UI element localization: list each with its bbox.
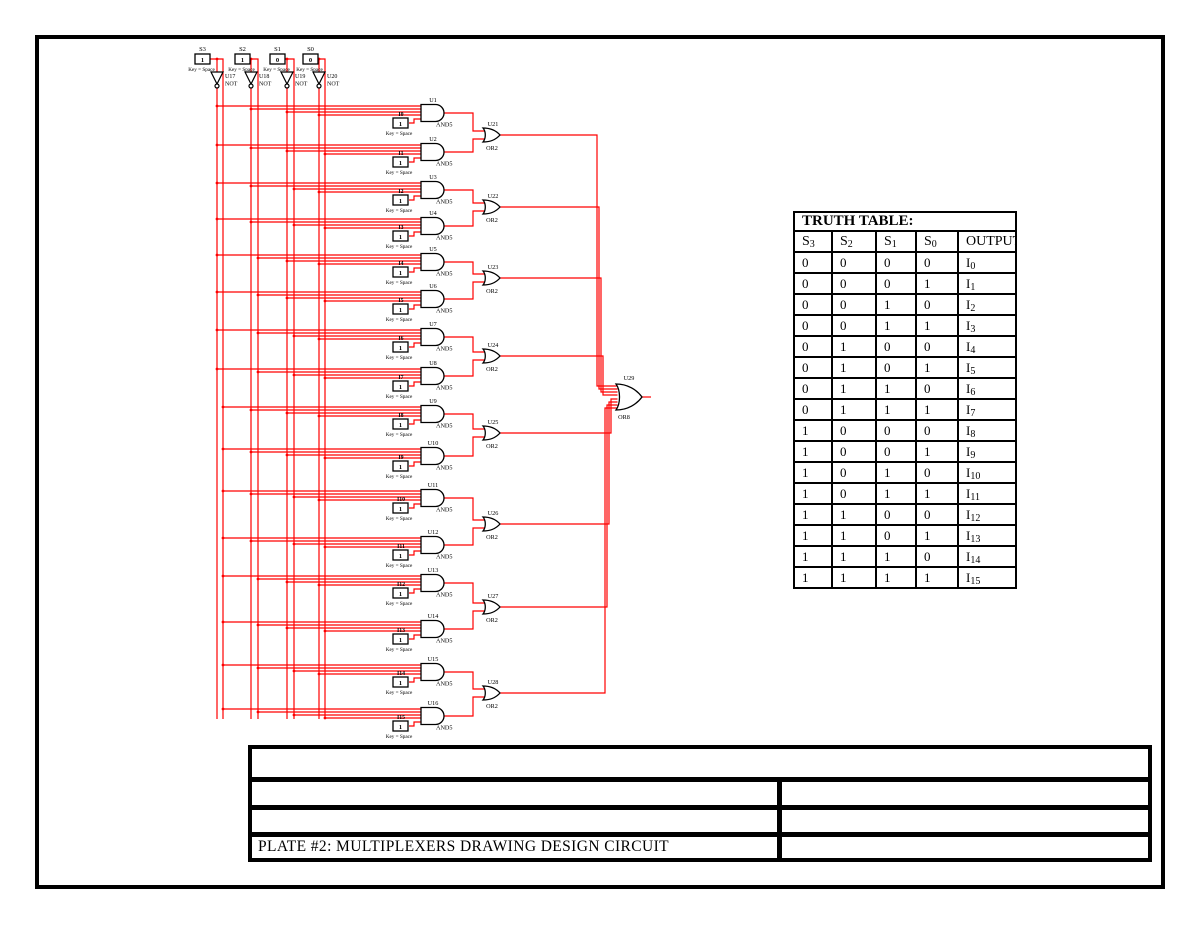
truth-table-bit-cell: 0 [876,252,916,273]
svg-text:U27: U27 [488,593,499,600]
svg-text:U2: U2 [429,136,437,143]
truth-table-row: 1010I10 [794,462,1016,483]
truth-table-bit-cell: 1 [876,315,916,336]
truth-table-bit-cell: 1 [832,567,876,588]
truth-table-bit-cell: 1 [916,483,958,504]
svg-text:S2: S2 [239,46,246,53]
truth-table-bit-cell: 1 [794,420,832,441]
svg-text:1: 1 [399,234,402,241]
truth-table-row: 1110I14 [794,546,1016,567]
truth-table-bit-cell: 1 [916,315,958,336]
svg-text:U26: U26 [488,510,499,517]
truth-table-bit-cell: 0 [794,273,832,294]
truth-table-output-cell: I2 [958,294,1016,315]
truth-table-bit-cell: 0 [832,252,876,273]
svg-text:NOT: NOT [259,82,272,88]
svg-text:I3: I3 [398,225,403,231]
svg-text:OR8: OR8 [618,414,630,421]
svg-text:Key = Space: Key = Space [386,563,413,569]
svg-text:U13: U13 [428,567,439,574]
svg-text:Key = Space: Key = Space [386,170,413,176]
truth-table-bit-cell: 0 [794,294,832,315]
truth-table-bit-cell: 1 [832,399,876,420]
truth-table-bit-cell: 1 [794,567,832,588]
truth-table-row: 0011I3 [794,315,1016,336]
truth-table-output-cell: I11 [958,483,1016,504]
components: 1S3Key = SpaceU17NOT1S2Key = SpaceU18NOT… [188,46,642,740]
or-gate-u26[interactable]: U26OR2 [483,510,500,541]
svg-text:Key = Space: Key = Space [386,474,413,480]
svg-text:1: 1 [399,307,402,314]
truth-table-bit-cell: 0 [916,546,958,567]
svg-text:Key = Space: Key = Space [386,601,413,607]
svg-text:Key = Space: Key = Space [386,280,413,286]
svg-text:Key = Space: Key = Space [386,394,413,400]
truth-table-bit-cell: 1 [916,273,958,294]
truth-table-row: 0001I1 [794,273,1016,294]
svg-text:U5: U5 [429,246,437,253]
svg-text:OR2: OR2 [486,217,498,224]
svg-text:I13: I13 [397,628,405,634]
svg-text:1: 1 [399,506,402,513]
truth-table-bit-cell: 1 [916,357,958,378]
svg-text:1: 1 [399,422,402,429]
title-block-cell [782,810,1148,832]
svg-text:U12: U12 [428,529,439,536]
svg-text:AND5: AND5 [436,465,453,472]
svg-text:OR2: OR2 [486,145,498,152]
svg-text:I8: I8 [398,413,403,419]
svg-text:U15: U15 [428,656,439,663]
switch-I14[interactable]: 1I14Key = Space [386,671,413,696]
truth-table-bit-cell: 1 [832,336,876,357]
svg-text:U7: U7 [429,321,437,328]
svg-text:1: 1 [399,270,402,277]
svg-text:AND5: AND5 [436,346,453,353]
svg-text:U6: U6 [429,283,437,290]
svg-text:U8: U8 [429,360,437,367]
svg-text:Key = Space: Key = Space [386,647,413,653]
svg-text:U28: U28 [488,679,499,686]
truth-table-bit-cell: 0 [876,336,916,357]
svg-text:I12: I12 [397,582,405,588]
truth-table-bit-cell: 1 [832,504,876,525]
or-gate-u25[interactable]: U25OR2 [483,419,500,450]
svg-text:I7: I7 [398,375,403,381]
truth-table-bit-cell: 1 [832,546,876,567]
truth-table-bit-cell: 0 [876,504,916,525]
truth-table-output-cell: I14 [958,546,1016,567]
truth-table-title: TRUTH TABLE: [794,212,1016,231]
svg-text:OR2: OR2 [486,617,498,624]
switch-I4[interactable]: 1I4Key = Space [386,261,413,286]
schematic-page: 1S3Key = SpaceU17NOT1S2Key = SpaceU18NOT… [0,0,1200,927]
svg-text:NOT: NOT [327,82,340,88]
truth-table-output-cell: I4 [958,336,1016,357]
truth-table-bit-cell: 0 [876,273,916,294]
or-gate-u21[interactable]: U21OR2 [483,121,500,152]
truth-table-bit-cell: 1 [876,462,916,483]
truth-table-col-header: S2 [832,231,876,252]
switch-I13[interactable]: 1I13Key = Space [386,628,413,653]
truth-table-row: 1101I13 [794,525,1016,546]
svg-text:AND5: AND5 [436,592,453,599]
svg-text:OR2: OR2 [486,534,498,541]
not-gate-u17[interactable]: U17NOT [211,72,238,88]
svg-text:AND5: AND5 [436,507,453,514]
svg-text:U1: U1 [429,97,437,104]
truth-table-bit-cell: 0 [832,420,876,441]
switch-I7[interactable]: 1I7Key = Space [386,375,413,400]
svg-text:OR2: OR2 [486,366,498,373]
truth-table-bit-cell: 0 [876,441,916,462]
svg-text:AND5: AND5 [436,161,453,168]
svg-text:I6: I6 [398,336,403,342]
svg-text:I9: I9 [398,455,403,461]
truth-table-bit-cell: 1 [876,294,916,315]
or-gate-u23[interactable]: U23OR2 [483,264,500,295]
truth-table-output-cell: I1 [958,273,1016,294]
svg-text:AND5: AND5 [436,638,453,645]
switch-I11[interactable]: 1I11Key = Space [386,544,413,569]
svg-text:S1: S1 [274,46,281,53]
truth-table-bit-cell: 1 [876,546,916,567]
svg-text:U19: U19 [295,74,305,80]
switch-I3[interactable]: 1I3Key = Space [386,225,413,250]
truth-table-bit-cell: 1 [794,504,832,525]
svg-text:I1: I1 [398,151,403,157]
svg-text:U23: U23 [488,264,499,271]
truth-table-bit-cell: 0 [916,336,958,357]
truth-table-bit-cell: 1 [832,525,876,546]
title-block-cell [252,810,782,832]
truth-table-bit-cell: 1 [876,378,916,399]
svg-text:1: 1 [399,160,402,167]
svg-text:U18: U18 [259,74,269,80]
truth-table-output-cell: I9 [958,441,1016,462]
svg-text:NOT: NOT [295,82,308,88]
svg-text:I5: I5 [398,298,403,304]
svg-text:OR2: OR2 [486,703,498,710]
truth-table-bit-cell: 1 [916,567,958,588]
truth-table-output-cell: I3 [958,315,1016,336]
svg-text:AND5: AND5 [436,681,453,688]
svg-text:OR2: OR2 [486,443,498,450]
or-gate-u28[interactable]: U28OR2 [483,679,500,710]
truth-table-bit-cell: 1 [794,483,832,504]
truth-table-bit-cell: 0 [832,273,876,294]
svg-text:1: 1 [399,121,402,128]
svg-text:Key = Space: Key = Space [386,516,413,522]
svg-text:AND5: AND5 [436,725,453,732]
svg-text:AND5: AND5 [436,554,453,561]
svg-text:1: 1 [399,637,402,644]
svg-text:AND5: AND5 [436,308,453,315]
svg-text:Key = Space: Key = Space [386,355,413,361]
truth-table-bit-cell: 1 [916,441,958,462]
or-gate-u27[interactable]: U27OR2 [483,593,500,624]
truth-table-bit-cell: 0 [916,462,958,483]
truth-table-output-cell: I0 [958,252,1016,273]
svg-text:I4: I4 [398,261,403,267]
svg-text:0: 0 [276,57,279,64]
svg-text:1: 1 [399,591,402,598]
truth-table-bit-cell: 1 [832,378,876,399]
truth-table-row: 0100I4 [794,336,1016,357]
truth-table-bit-cell: 0 [794,252,832,273]
truth-table-bit-cell: 0 [832,294,876,315]
truth-table-bit-cell: 0 [916,504,958,525]
title-block-row [252,810,1148,837]
switch-I10[interactable]: 1I10Key = Space [386,497,413,522]
svg-text:U16: U16 [428,700,439,707]
svg-text:Key = Space: Key = Space [386,208,413,214]
truth-table-row: 0111I7 [794,399,1016,420]
svg-text:AND5: AND5 [436,235,453,242]
truth-table-row: 0101I5 [794,357,1016,378]
title-block-row [252,782,1148,810]
truth-table-row: 0010I2 [794,294,1016,315]
truth-table-bit-cell: 0 [794,378,832,399]
truth-table-bit-cell: 1 [794,441,832,462]
svg-text:Key = Space: Key = Space [386,244,413,250]
svg-text:I14: I14 [397,671,405,677]
svg-text:1: 1 [399,724,402,731]
truth-table-output-cell: I7 [958,399,1016,420]
svg-text:1: 1 [399,464,402,471]
truth-table-output-cell: I10 [958,462,1016,483]
truth-table-bit-cell: 0 [876,357,916,378]
truth-table-bit-cell: 0 [916,420,958,441]
truth-table-header-row: S3S2S1S0OUTPUT [794,231,1016,252]
or-gate-u29[interactable]: U29OR8 [616,375,642,421]
truth-table-bit-cell: 1 [794,462,832,483]
truth-table-bit-cell: 0 [794,399,832,420]
truth-table-row: 0000I0 [794,252,1016,273]
svg-text:U22: U22 [488,193,499,200]
truth-table-col-header: S1 [876,231,916,252]
switch-I2[interactable]: 1I2Key = Space [386,189,413,214]
svg-text:S0: S0 [307,46,314,53]
truth-table-bit-cell: 0 [794,315,832,336]
svg-text:U24: U24 [488,342,499,349]
svg-text:U9: U9 [429,398,437,405]
truth-table-col-header: S3 [794,231,832,252]
title-block-cell: PLATE #2: MULTIPLEXERS DRAWING DESIGN CI… [252,837,782,858]
svg-text:U25: U25 [488,419,499,426]
switch-I15[interactable]: 1I15Key = Space [386,715,413,740]
truth-table-row: 1001I9 [794,441,1016,462]
truth-table-output-cell: I15 [958,567,1016,588]
truth-table-bit-cell: 0 [876,525,916,546]
truth-table-bit-cell: 0 [916,294,958,315]
truth-table-bit-cell: 0 [794,336,832,357]
title-block: PLATE #2: MULTIPLEXERS DRAWING DESIGN CI… [248,745,1152,862]
svg-text:U17: U17 [225,74,235,80]
svg-text:I10: I10 [397,497,405,503]
svg-text:AND5: AND5 [436,122,453,129]
svg-text:Key = Space: Key = Space [386,432,413,438]
svg-text:1: 1 [399,680,402,687]
truth-table-row: 1000I8 [794,420,1016,441]
truth-table-output-cell: I6 [958,378,1016,399]
switch-I6[interactable]: 1I6Key = Space [386,336,413,361]
truth-table-bit-cell: 1 [916,399,958,420]
svg-text:Key = Space: Key = Space [386,317,413,323]
not-gate-u20[interactable]: U20NOT [313,72,340,88]
switch-I0[interactable]: 1I0Key = Space [386,112,413,137]
svg-text:U14: U14 [428,613,439,620]
svg-text:AND5: AND5 [436,271,453,278]
truth-table: TRUTH TABLE: S3S2S1S0OUTPUT 0000I00001I1… [793,211,1017,589]
truth-table-bit-cell: 1 [794,525,832,546]
switch-I5[interactable]: 1I5Key = Space [386,298,413,323]
svg-text:U3: U3 [429,174,437,181]
svg-text:U29: U29 [624,375,635,382]
svg-text:NOT: NOT [225,82,238,88]
title-block-cell [782,837,1148,858]
svg-text:1: 1 [399,553,402,560]
truth-table-col-header: OUTPUT [958,231,1016,252]
svg-text:AND5: AND5 [436,199,453,206]
truth-table-bit-cell: 1 [794,546,832,567]
svg-text:AND5: AND5 [436,423,453,430]
truth-table-bit-cell: 0 [916,378,958,399]
svg-text:0: 0 [309,57,312,64]
svg-text:U10: U10 [428,440,439,447]
or-gate-u22[interactable]: U22OR2 [483,193,500,224]
svg-text:OR2: OR2 [486,288,498,295]
truth-table-output-cell: I13 [958,525,1016,546]
truth-table-bit-cell: 0 [916,252,958,273]
svg-text:I2: I2 [398,189,403,195]
truth-table-output-cell: I5 [958,357,1016,378]
truth-table-row: 1111I15 [794,567,1016,588]
svg-text:U4: U4 [429,210,437,217]
plate-title: PLATE #2: MULTIPLEXERS DRAWING DESIGN CI… [252,837,777,856]
truth-table-bit-cell: 1 [876,399,916,420]
title-block-cell [782,782,1148,805]
truth-table-row: 1100I12 [794,504,1016,525]
truth-table-bit-cell: 1 [916,525,958,546]
truth-table-output-cell: I8 [958,420,1016,441]
truth-table-bit-cell: 0 [832,315,876,336]
switch-I8[interactable]: 1I8Key = Space [386,413,413,438]
svg-text:I0: I0 [398,112,403,118]
svg-text:AND5: AND5 [436,385,453,392]
svg-text:U21: U21 [488,121,499,128]
truth-table-bit-cell: 0 [832,462,876,483]
svg-text:Key = Space: Key = Space [386,734,413,740]
svg-text:I11: I11 [397,544,405,550]
truth-table-bit-cell: 1 [876,483,916,504]
truth-table-bit-cell: 1 [832,357,876,378]
truth-table-bit-cell: 0 [832,441,876,462]
truth-table-output-cell: I12 [958,504,1016,525]
svg-text:U11: U11 [428,482,438,489]
svg-text:Key = Space: Key = Space [386,690,413,696]
title-block-row: PLATE #2: MULTIPLEXERS DRAWING DESIGN CI… [252,837,1148,858]
truth-table-title-row: TRUTH TABLE: [794,212,1016,231]
truth-table-bit-cell: 0 [794,357,832,378]
svg-text:S3: S3 [199,46,206,53]
svg-text:I15: I15 [397,715,405,721]
svg-text:Key = Space: Key = Space [386,131,413,137]
title-block-row-empty [252,749,1148,782]
switch-I12[interactable]: 1I12Key = Space [386,582,413,607]
svg-text:1: 1 [399,345,402,352]
svg-text:1: 1 [399,384,402,391]
truth-table-row: 0110I6 [794,378,1016,399]
or-gate-u24[interactable]: U24OR2 [483,342,500,373]
truth-table-bit-cell: 0 [876,420,916,441]
svg-text:1: 1 [201,57,204,64]
switch-I9[interactable]: 1I9Key = Space [386,455,413,480]
truth-table-col-header: S0 [916,231,958,252]
title-block-cell [252,782,782,805]
truth-table-bit-cell: 1 [876,567,916,588]
svg-text:U20: U20 [327,74,337,80]
svg-text:1: 1 [241,57,244,64]
switch-I1[interactable]: 1I1Key = Space [386,151,413,176]
truth-table-bit-cell: 0 [832,483,876,504]
svg-text:1: 1 [399,198,402,205]
truth-table-row: 1011I11 [794,483,1016,504]
